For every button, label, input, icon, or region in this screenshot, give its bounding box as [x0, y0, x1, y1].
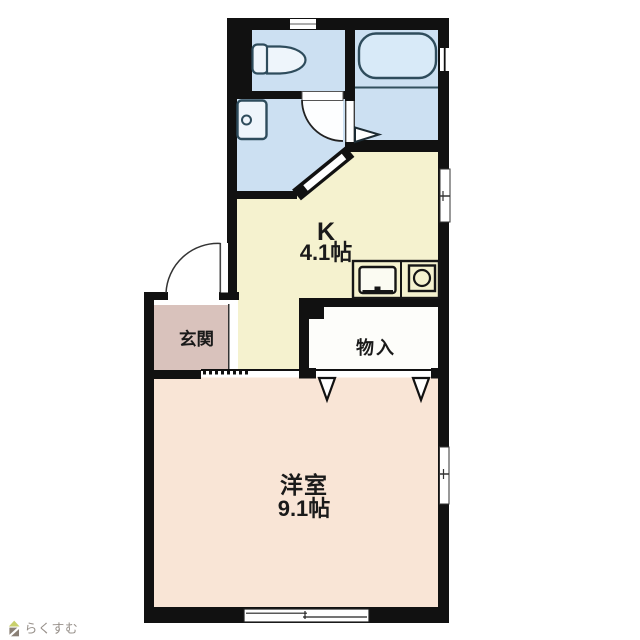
svg-text:9.1帖: 9.1帖	[278, 496, 331, 521]
svg-text:洋室: 洋室	[280, 472, 328, 498]
svg-text:らくすむ: らくすむ	[25, 621, 79, 636]
svg-text:4.1帖: 4.1帖	[300, 240, 353, 265]
svg-text:玄関: 玄関	[179, 329, 214, 349]
svg-text:物入: 物入	[356, 337, 396, 358]
